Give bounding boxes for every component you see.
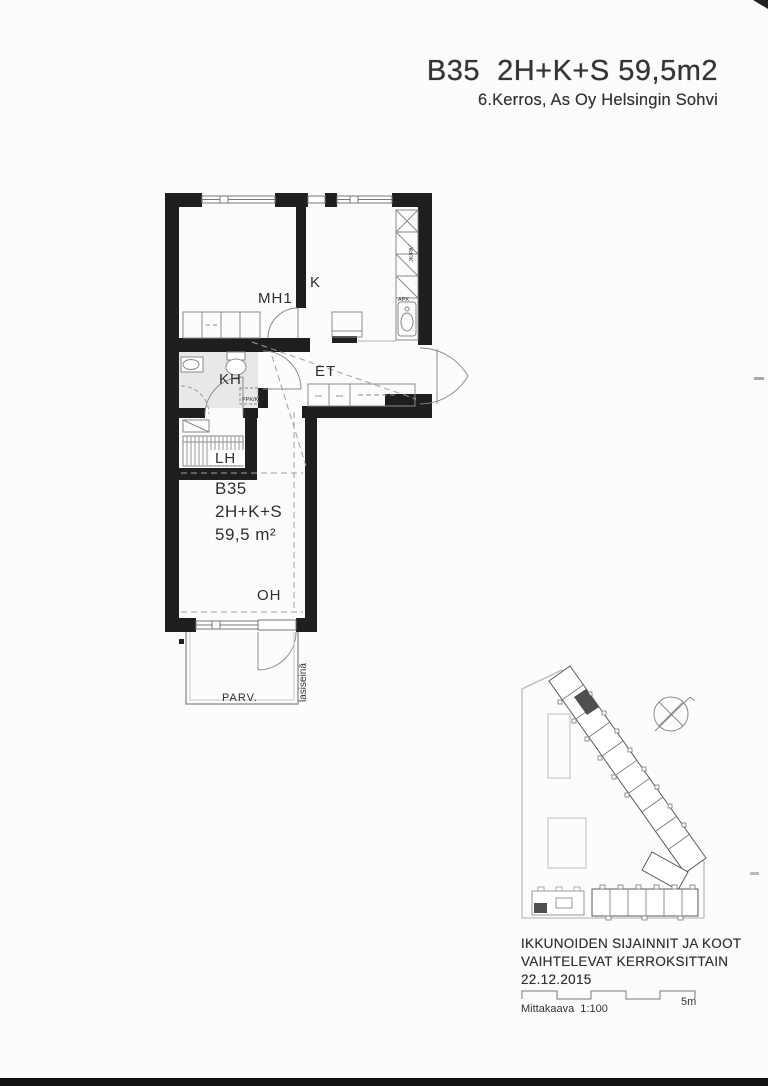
walls [165,193,432,644]
scan-corner-mark [753,0,768,9]
window-mullion [212,621,220,629]
site-building-wing [549,666,706,873]
cabinet-diagonal [396,276,418,298]
apartment-info-block: B35 2H+K+S 59,5 m² [215,479,282,544]
dashed-line [272,356,306,466]
scale-label: Mittakaava 1:100 [521,1003,608,1015]
note-date: 22.12.2015 [521,972,592,987]
scanned-floorplan-page: B35 2H+K+S 59,5m2 6.Kerros, As Oy Helsin… [0,0,768,1086]
scan-speck [754,377,764,380]
apartment-id: B35 [215,479,247,498]
dishwasher-label: APK [398,297,409,303]
fridge-label: JK/PA [409,247,415,262]
wall-bathroom-bottom [165,408,205,418]
site-courtyard-building [548,818,586,868]
window-small [308,196,325,203]
room-label-bathroom: KH [219,371,242,388]
wall-living-bottom [296,618,317,632]
balcony-inner-line [190,632,294,700]
kitchen-sink-basin [401,313,413,331]
room-label-living: OH [257,587,282,604]
scale-bar [522,991,695,999]
scan-artifacts [0,0,768,1086]
wall-bathroom-top [165,338,310,352]
room-label-bedroom: MH1 [258,290,293,307]
site-courtyard-building [548,714,570,778]
wall-bedroom-kitchen [296,207,306,308]
glass-wall-label: lasiseinä [298,663,309,702]
room-label-kitchen: K [310,274,321,291]
sauna-heater-diagonal [183,420,209,432]
wall-sauna-right [245,418,257,468]
floorplan-drawing: MH1 K ET KH LH OH PARV. lasiseinä B35 2H… [0,0,768,1086]
door-balcony [258,632,296,670]
balcony-door-frame [258,620,296,630]
kitchen-counter [396,210,418,340]
room-label-sauna: LH [215,450,236,467]
scale-end-label: 5m [681,996,696,1008]
window-mullion [350,196,358,203]
compass-north-icon [654,697,695,731]
room-label-hall: ET [315,363,336,380]
site-left-block-dark [534,903,547,913]
wall-hall-bottom [302,406,432,418]
scan-edge-bottom [0,1078,768,1086]
site-plan [522,666,706,920]
wall-right [418,193,432,345]
wall-living-bottom [165,618,196,632]
site-left-ticks [538,887,580,891]
note-line-2: VAIHTELEVAT KERROKSITTAIN [521,954,728,969]
note-line-1: IKKUNOIDEN SIJAINNIT JA KOOT [521,936,741,951]
apartment-area: 59,5 m² [215,525,276,544]
door-bedroom [268,308,298,338]
apartment-type: 2H+K+S [215,502,282,521]
wall-living-right [305,406,317,618]
washer-label: PPK/KU [242,397,262,403]
kitchen-faucet [405,307,409,311]
window-mullion [220,196,228,203]
wall-segment [275,193,308,207]
room-label-balcony: PARV. [222,692,258,704]
kitchen-island [332,312,362,337]
wall-bathroom-bottom [243,408,258,418]
wall-segment [325,193,337,207]
scan-speck [750,872,759,875]
survey-dot [179,639,184,644]
